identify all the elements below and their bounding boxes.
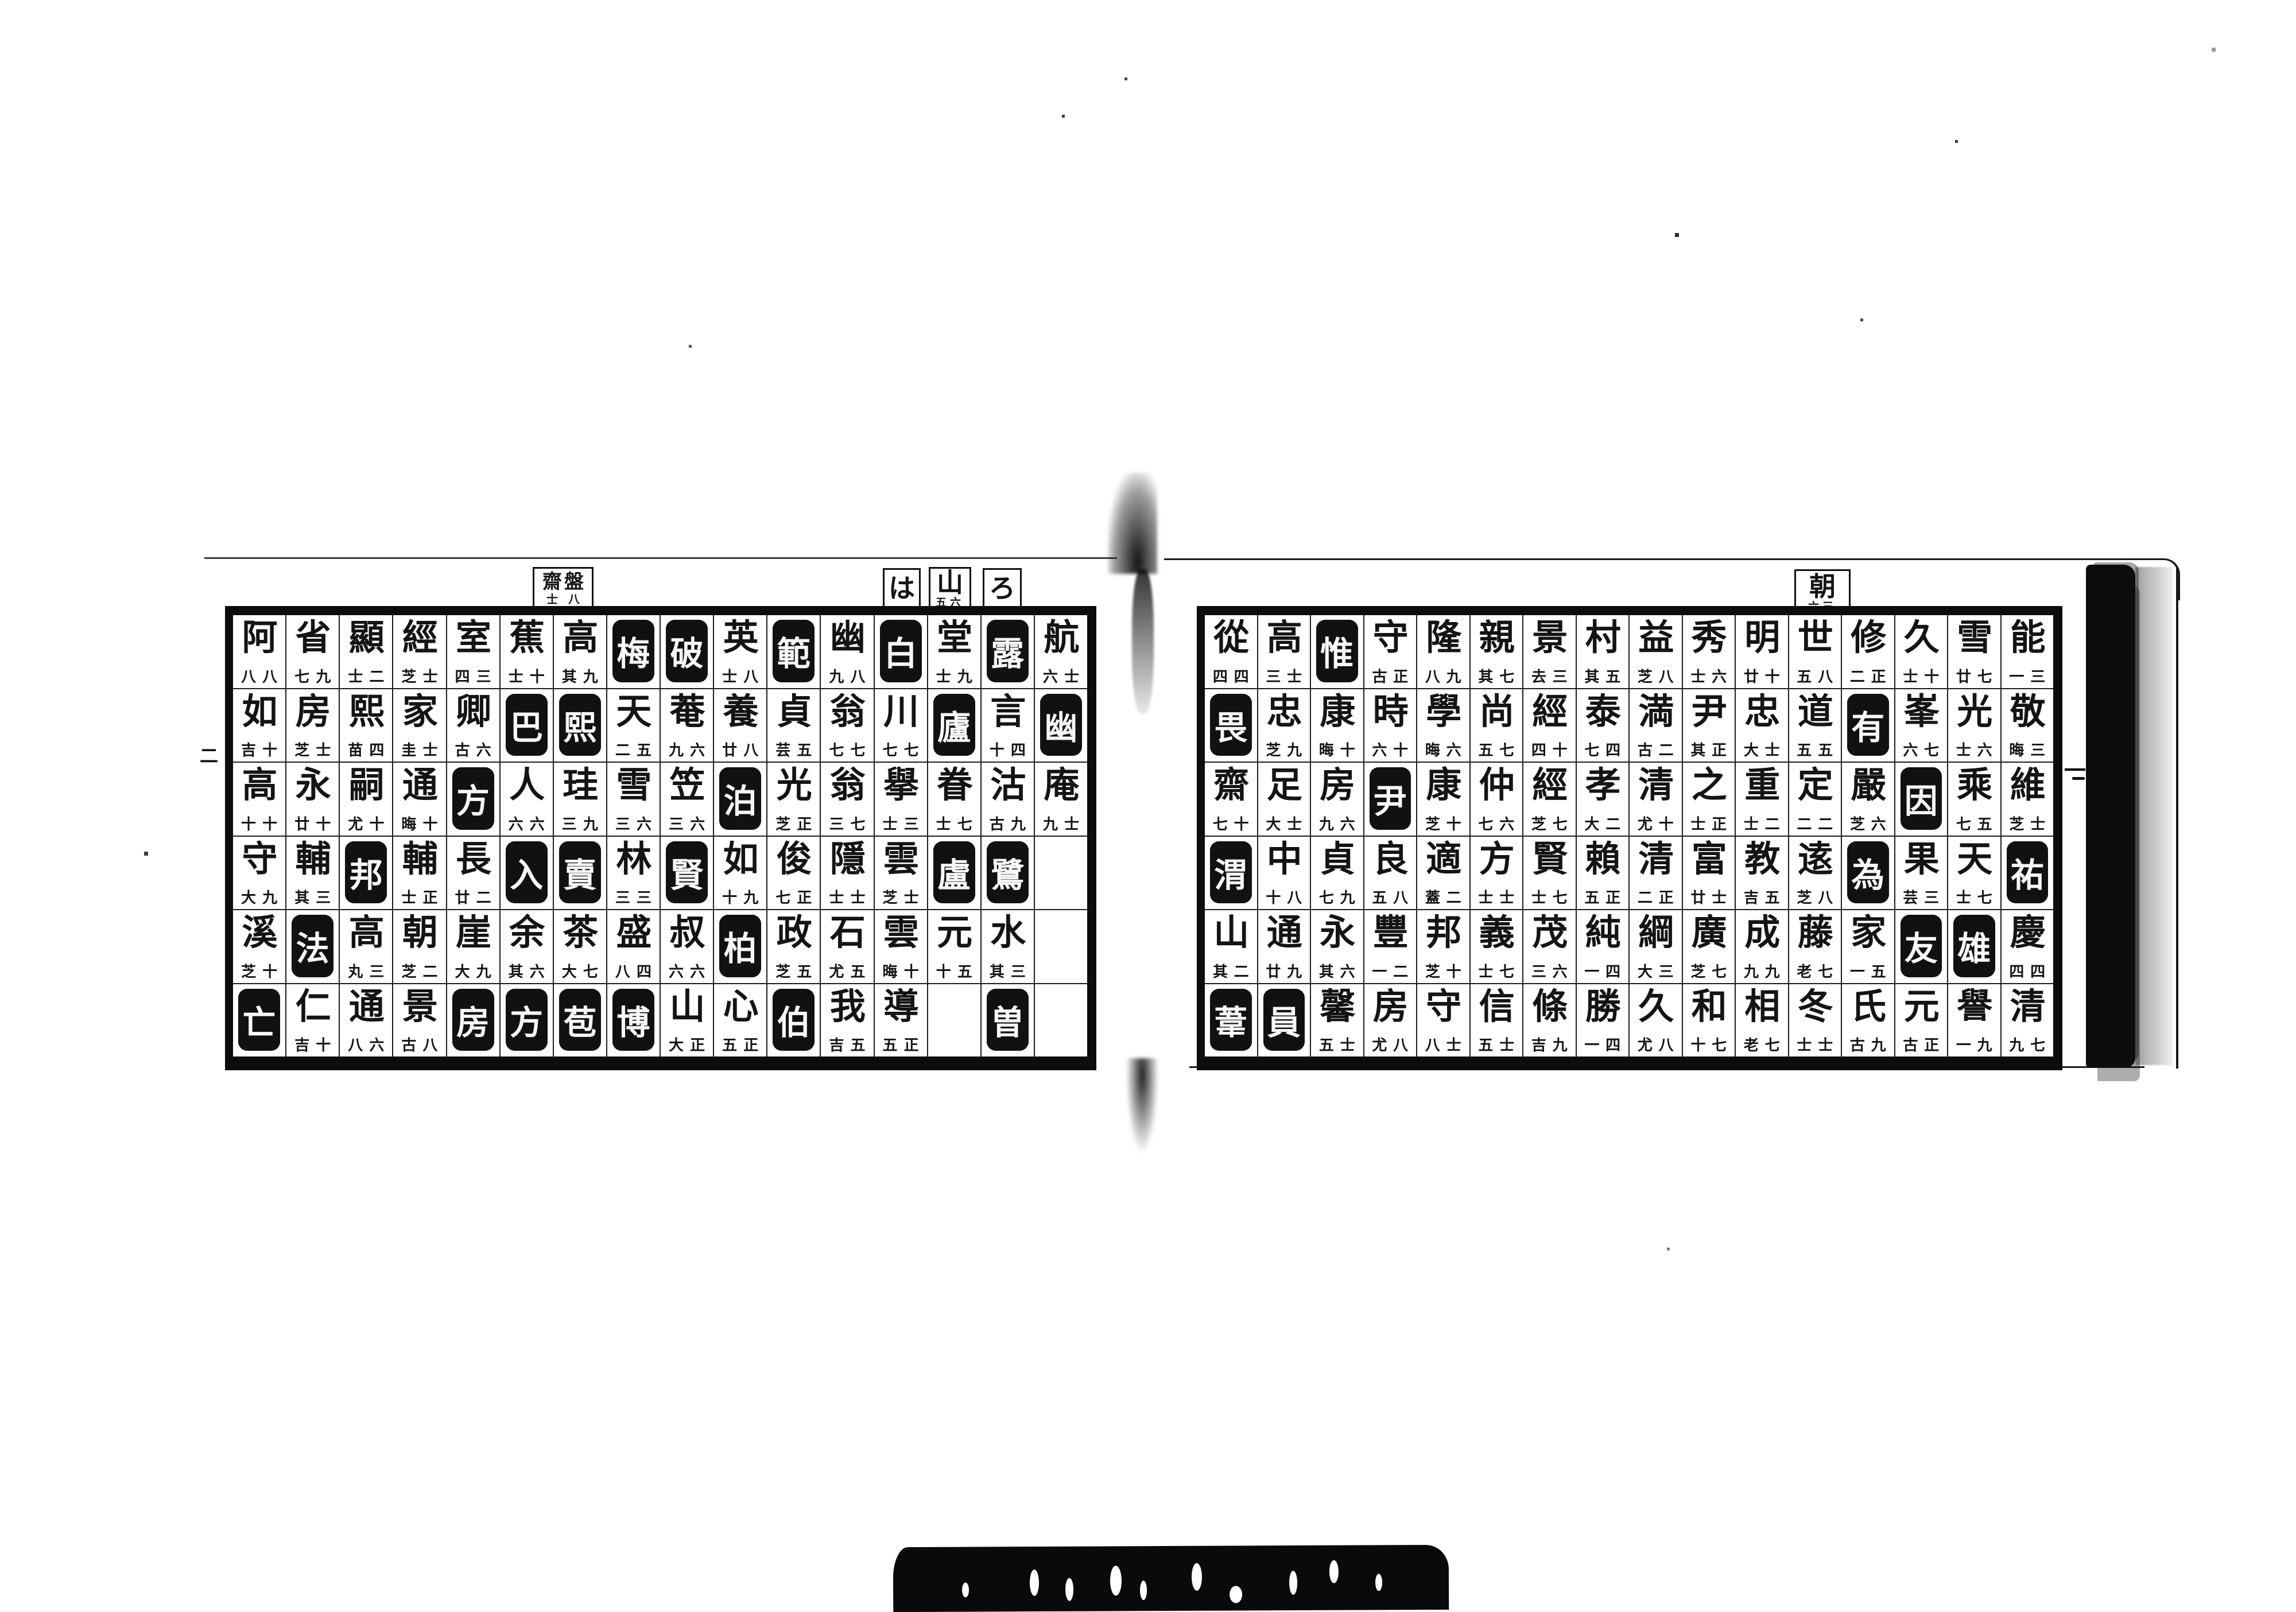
ref-numeral: 九 xyxy=(829,670,844,685)
ref-numeral: 九 xyxy=(1871,1038,1886,1053)
cell-ref-numbers: 九七 xyxy=(2003,1037,2052,1053)
inverted-cell-character: 有 xyxy=(1847,694,1889,756)
name-column: 省七九房芝士永廿十輔其三法仁吉十 xyxy=(286,615,340,1056)
grid-cell: 逺芝八 xyxy=(1789,837,1841,911)
grid-cell: 方 xyxy=(501,984,553,1057)
cell-character: 水 xyxy=(983,915,1032,952)
inverted-cell-character: 博 xyxy=(612,989,654,1051)
ref-numeral: 十 xyxy=(1234,817,1249,832)
cell-character: 成 xyxy=(1737,915,1786,952)
cell-ref-numbers: 八六 xyxy=(342,1037,390,1053)
grid-cell: 成九九 xyxy=(1736,910,1788,984)
ref-numeral: 三 xyxy=(615,891,630,906)
ref-char: 齋 xyxy=(542,573,562,592)
grid-cell: 為 xyxy=(1842,837,1894,911)
cell-ref-numbers: 四四 xyxy=(1207,669,1255,685)
inverted-cell-character: 熙 xyxy=(559,694,601,756)
name-column: 景去三經四十經芝七賢士七茂三六條吉九 xyxy=(1523,615,1577,1056)
ref-numeral: 正 xyxy=(1393,670,1408,685)
ref-numeral: 古 xyxy=(1903,1038,1918,1053)
ref-numeral: 十 xyxy=(1446,817,1461,832)
ref-numeral: 七 xyxy=(1319,891,1334,906)
cell-character: 光 xyxy=(769,767,818,805)
grid-cell: 經芝士 xyxy=(393,615,445,689)
cell-ref-numbers: 大七 xyxy=(556,964,604,980)
cell-ref-numbers: 老七 xyxy=(1791,964,1840,980)
cell-ref-numbers: 芝士 xyxy=(2003,816,2052,832)
cell-ref-numbers: 士二 xyxy=(1737,816,1786,832)
grid-cell: 光芝正 xyxy=(767,763,820,837)
ref-numeral: 二 xyxy=(1797,817,1812,832)
name-column: 範貞芸五光芝正俊七正政芝五伯 xyxy=(767,615,821,1056)
cell-ref-numbers: 芸三 xyxy=(1897,889,1946,906)
grid-cell: 賢 xyxy=(661,837,713,911)
ref-numeral: 廿 xyxy=(455,891,470,906)
grid-cell: 清二正 xyxy=(1630,837,1682,911)
cell-character: 家 xyxy=(395,694,444,731)
grid-cell: 元十五 xyxy=(928,910,980,984)
grid-cell: 通晦十 xyxy=(393,763,445,837)
ref-numeral: 三 xyxy=(1553,670,1568,685)
grid-cell: 盧 xyxy=(928,837,980,911)
cell-ref-numbers: 其六 xyxy=(502,964,551,980)
grid-cell: 天士七 xyxy=(1948,837,2000,911)
ref-numeral: 六 xyxy=(1977,743,1992,758)
grid-cell-empty xyxy=(1035,984,1087,1057)
ref-numeral: 五 xyxy=(1372,891,1387,906)
ref-numeral: 七 xyxy=(775,891,790,906)
grid-cell: 朝芝二 xyxy=(393,910,445,984)
cell-character: 雲 xyxy=(876,915,925,952)
ref-numeral: 八 xyxy=(850,670,865,685)
cell-ref-numbers: 芝士 xyxy=(288,742,337,758)
ref-numeral: 七 xyxy=(1553,817,1568,832)
cell-character: 守 xyxy=(1419,989,1468,1026)
ref-numeral: 大 xyxy=(455,965,470,980)
cell-character: 敬 xyxy=(2003,694,2052,731)
cell-character: 永 xyxy=(1313,915,1362,952)
cell-ref-numbers: 四三 xyxy=(449,669,498,685)
tab-character: は xyxy=(889,576,915,602)
cell-character: 余 xyxy=(502,915,551,952)
ref-numeral: 七 xyxy=(1924,743,1939,758)
cell-ref-numbers: 士士 xyxy=(1472,889,1521,906)
cell-character: 沽 xyxy=(983,767,1032,805)
ref-numeral: 五 xyxy=(1584,891,1599,906)
ref-numeral: 五 xyxy=(1319,1038,1334,1053)
ref-numeral: 六 xyxy=(509,817,523,832)
grid-cell: 賣 xyxy=(554,837,606,911)
ref-numeral: 七 xyxy=(904,743,919,758)
cell-ref-numbers: 吉十 xyxy=(288,1037,337,1053)
cell-character: 英 xyxy=(716,620,765,657)
ref-numeral: 吉 xyxy=(829,1038,844,1053)
grid-cell: 省七九 xyxy=(286,615,339,689)
ref-numeral: 十 xyxy=(1446,965,1461,980)
grid-cell: 水其三 xyxy=(982,910,1034,984)
grid-cell: 蕉士十 xyxy=(501,615,553,689)
ref-numeral: 士 xyxy=(1712,891,1727,906)
grid-cell: 雲芝士 xyxy=(875,837,927,911)
ref-numeral: 九 xyxy=(1553,1038,1568,1053)
grid-cell: 博 xyxy=(607,984,660,1057)
ref-numeral: 七 xyxy=(1818,965,1833,980)
grid-cell: 之士正 xyxy=(1683,763,1735,837)
cell-ref-numbers: 二正 xyxy=(1844,669,1892,685)
name-column: 益芝八満古二清尤十清二正綱大三久尤八 xyxy=(1630,615,1683,1056)
cell-ref-numbers: 其二 xyxy=(1207,964,1255,980)
cell-ref-numbers: 四十 xyxy=(1525,742,1574,758)
ref-numeral: 古 xyxy=(401,1038,416,1053)
cell-ref-numbers: 廿十 xyxy=(1737,669,1786,685)
inverted-cell-character: 破 xyxy=(666,620,708,682)
ref-numeral: 芝 xyxy=(1797,891,1812,906)
cell-character: 信 xyxy=(1472,989,1521,1026)
ref-numeral: 去 xyxy=(1531,670,1546,685)
grid-cell: 範 xyxy=(767,615,820,689)
grid-cell: 鷺 xyxy=(982,837,1034,911)
ref-numeral: 士 xyxy=(1797,1038,1812,1053)
grid-cell: 村其五 xyxy=(1577,615,1629,689)
cell-ref-numbers: 士六 xyxy=(1950,742,1999,758)
ref-numeral: 二 xyxy=(369,670,384,685)
ref-numeral: 其 xyxy=(509,965,523,980)
grid-cell: 余其六 xyxy=(501,910,553,984)
ref-numeral: 士 xyxy=(1499,891,1514,906)
cell-character: 重 xyxy=(1737,767,1786,805)
cell-character: 賴 xyxy=(1578,841,1627,879)
grid-cell: 學晦六 xyxy=(1417,689,1469,763)
cell-ref-numbers: 十九 xyxy=(716,889,765,906)
ref-numeral: 十 xyxy=(316,1038,331,1053)
cell-ref-numbers: 三七 xyxy=(823,816,871,832)
inverted-cell-character: 賣 xyxy=(559,841,601,904)
inverted-cell-character: 因 xyxy=(1901,767,1942,830)
ref-numeral: 二 xyxy=(1234,965,1249,980)
ref-numeral: 士 xyxy=(1340,1038,1355,1053)
cell-ref-numbers: 晦十 xyxy=(876,964,925,980)
ref-numeral: 大 xyxy=(1584,817,1599,832)
ref-numeral: 二 xyxy=(1818,817,1833,832)
cell-ref-numbers: 古九 xyxy=(983,816,1032,832)
cell-ref-numbers: 其六 xyxy=(1313,964,1362,980)
grid-cell: 中十八 xyxy=(1258,837,1310,911)
cell-ref-numbers: 其三 xyxy=(288,889,337,906)
ref-numeral: 正 xyxy=(422,891,437,906)
grid-cell: 時六十 xyxy=(1364,689,1417,763)
grid-cell: 山大正 xyxy=(661,984,713,1057)
name-column: 室四三卿古六方長廿二崖大九房 xyxy=(447,615,501,1056)
ref-numeral: 尤 xyxy=(829,965,844,980)
cell-character: 教 xyxy=(1737,841,1786,879)
cell-ref-numbers: 大士 xyxy=(1737,742,1786,758)
ref-numeral: 八 xyxy=(743,743,758,758)
cell-ref-numbers: 一三 xyxy=(2003,669,2052,685)
ref-numeral: 士 xyxy=(316,743,331,758)
cell-character: 久 xyxy=(1631,989,1680,1026)
ref-numeral: 二 xyxy=(615,743,630,758)
grid-cell: 乘七五 xyxy=(1948,763,2000,837)
cell-ref-numbers: 芝八 xyxy=(1791,889,1840,906)
ref-numeral: 八 xyxy=(1659,1038,1674,1053)
cell-ref-numbers: 尤八 xyxy=(1631,1037,1680,1053)
ref-numeral: 三 xyxy=(904,817,919,832)
grid-cell: 冬士士 xyxy=(1789,984,1841,1057)
cell-ref-numbers: 廿九 xyxy=(1260,964,1309,980)
ref-numeral: 芝 xyxy=(1531,817,1546,832)
cell-character: 清 xyxy=(1631,767,1680,805)
ref-numeral: 十 xyxy=(262,965,277,980)
cell-ref-numbers: 一五 xyxy=(1844,964,1892,980)
ref-numeral: 正 xyxy=(797,891,812,906)
cell-character: 貞 xyxy=(769,694,818,731)
cell-character: 齋 xyxy=(1207,767,1255,805)
grid-cell: 導五正 xyxy=(875,984,927,1057)
grid-cell: 崖大九 xyxy=(447,910,499,984)
cell-ref-numbers: 芝八 xyxy=(1631,669,1680,685)
cell-ref-numbers: 芝七 xyxy=(1525,816,1574,832)
cell-ref-numbers: 吉九 xyxy=(1525,1037,1574,1053)
cell-character: 村 xyxy=(1578,620,1627,657)
cell-ref-numbers: 三三 xyxy=(609,889,658,906)
cell-character: 高 xyxy=(235,767,284,805)
cell-ref-numbers: 十十 xyxy=(235,816,284,832)
cell-ref-numbers: 三六 xyxy=(1525,964,1574,980)
cell-character: 明 xyxy=(1737,620,1786,657)
cell-character: 崖 xyxy=(449,915,498,952)
cell-character: 能 xyxy=(2003,620,2052,657)
gutter-smudge-bottom xyxy=(1126,1058,1158,1152)
grid-cell: 康晦十 xyxy=(1311,689,1363,763)
cell-ref-numbers: 七七 xyxy=(823,742,871,758)
cell-character: 慶 xyxy=(2003,915,2052,952)
ref-numeral: 芝 xyxy=(1638,670,1653,685)
cell-ref-numbers: 五八 xyxy=(1791,669,1840,685)
grid-cell: 石尤五 xyxy=(821,910,873,984)
inverted-cell-character: 亡 xyxy=(238,989,280,1051)
grid-cell: 輔士正 xyxy=(393,837,445,911)
grid-cell: 世五八 xyxy=(1789,615,1841,689)
grid-cell: 英士八 xyxy=(714,615,766,689)
cell-character: 良 xyxy=(1366,841,1415,879)
grid-cell: 景古八 xyxy=(393,984,445,1057)
name-column: 高其九熙珪三九賣茶大七苞 xyxy=(554,615,607,1056)
grid-cell: 光士六 xyxy=(1948,689,2000,763)
grid-cell: 堂士九 xyxy=(928,615,980,689)
ref-numeral: 古 xyxy=(1638,743,1653,758)
ref-numeral: 士 xyxy=(1818,1038,1833,1053)
cell-character: 室 xyxy=(449,620,498,657)
cell-character: 天 xyxy=(1950,841,1999,879)
tab-character: ろ xyxy=(989,576,1015,602)
ref-numeral: 八 xyxy=(1425,670,1440,685)
name-column: 守古正時六十尹良五八豐一二房尤八 xyxy=(1364,615,1418,1056)
name-column: 修二正有嚴芝六為家一五氏古九 xyxy=(1842,615,1895,1056)
ref-numeral: 四 xyxy=(369,743,384,758)
ref-numeral: 七 xyxy=(1499,965,1514,980)
cell-ref-numbers: 芝士 xyxy=(876,889,925,906)
ref-numeral: 六 xyxy=(1712,670,1727,685)
cell-ref-numbers: 九六 xyxy=(662,742,711,758)
grid-cell-empty xyxy=(928,984,980,1057)
grid-cell: 通廿九 xyxy=(1258,910,1310,984)
ref-numeral: 一 xyxy=(1372,965,1387,980)
grid-cell: 修二正 xyxy=(1842,615,1894,689)
name-column: 從四四畏齋七十渭山其二葦 xyxy=(1205,615,1258,1056)
cell-ref-numbers xyxy=(930,1037,979,1053)
ref-numeral: 七 xyxy=(957,817,972,832)
cell-ref-numbers: 大九 xyxy=(449,964,498,980)
ref-numeral: 七 xyxy=(1499,670,1514,685)
ref-numeral: 老 xyxy=(1744,1038,1759,1053)
ref-numeral: 九 xyxy=(583,670,598,685)
ref-numeral: 十 xyxy=(1266,891,1281,906)
grid-cell: 苞 xyxy=(554,984,606,1057)
grid-cell: 庵九士 xyxy=(1035,763,1087,837)
ref-numeral: 士 xyxy=(1064,670,1079,685)
inverted-cell-character: 白 xyxy=(880,620,922,682)
grid-cell: 渭 xyxy=(1205,837,1257,911)
grid-cell: 隱士士 xyxy=(821,837,873,911)
grid-cell: 幽九八 xyxy=(821,615,873,689)
ref-numeral: 六 xyxy=(1372,743,1387,758)
cell-character: 雪 xyxy=(1950,620,1999,657)
grid-cell: 溪芝十 xyxy=(233,910,285,984)
cell-ref-numbers: 士七 xyxy=(1525,889,1574,906)
cell-ref-numbers: 大二 xyxy=(1578,816,1627,832)
cell-character: 通 xyxy=(342,989,390,1026)
page-edge-speckle xyxy=(2135,567,2173,1065)
cell-ref-numbers: 五七 xyxy=(1472,742,1521,758)
cell-ref-numbers: 廿七 xyxy=(1950,669,1999,685)
cell-character: 石 xyxy=(823,915,871,952)
name-column: 阿八八如吉十高十十守大九溪芝十亡 xyxy=(233,615,286,1056)
cell-ref-numbers: 士七 xyxy=(1950,889,1999,906)
cell-character: 經 xyxy=(1525,767,1574,805)
ref-numeral: 三 xyxy=(2030,743,2045,758)
cell-character: 足 xyxy=(1260,767,1309,805)
ref-numeral: 十 xyxy=(990,743,1004,758)
ref-numeral: 其 xyxy=(1690,743,1705,758)
grid-cell-empty xyxy=(1035,837,1087,911)
right-page-top-edge xyxy=(1164,558,2130,560)
cell-character: 康 xyxy=(1419,767,1468,805)
inverted-cell-character: 房 xyxy=(452,989,494,1051)
cell-character: 清 xyxy=(2003,989,2052,1026)
cell-character: 蕉 xyxy=(502,620,551,657)
ref-numeral: 二 xyxy=(1605,817,1620,832)
cell-character: 馨 xyxy=(1313,989,1362,1026)
ref-numeral: 五 xyxy=(637,743,651,758)
ref-numeral: 正 xyxy=(904,1038,919,1053)
inverted-cell-character: 苞 xyxy=(559,989,601,1051)
ref-numeral: 芝 xyxy=(2009,817,2024,832)
cell-character: 茶 xyxy=(556,915,604,952)
cell-ref-numbers: 丸三 xyxy=(342,964,390,980)
cell-character: 仲 xyxy=(1472,767,1521,805)
name-column: 世五八道五五定二二逺芝八藤老七冬士士 xyxy=(1789,615,1843,1056)
name-column: 顯士二熙苗四嗣尤十邦高丸三通八六 xyxy=(340,615,393,1056)
cell-character: 叔 xyxy=(662,915,711,952)
name-column: 高三士忠芝九足大士中十八通廿九員 xyxy=(1258,615,1312,1056)
ref-numeral: 二 xyxy=(1638,891,1653,906)
cell-ref-numbers: 士八 xyxy=(716,669,765,685)
ref-numeral: 七 xyxy=(294,670,309,685)
grid-cell: 泊 xyxy=(714,763,766,837)
grid-cell: 露 xyxy=(982,615,1034,689)
ref-numeral: 大 xyxy=(562,965,577,980)
ref-numeral: 四 xyxy=(1531,743,1546,758)
grid-cell: 雪三六 xyxy=(607,763,660,837)
ref-numeral: 六 xyxy=(637,817,651,832)
cell-ref-numbers: 九六 xyxy=(1313,816,1362,832)
ref-numeral: 八 xyxy=(1818,891,1833,906)
grid-cell: 益芝八 xyxy=(1630,615,1682,689)
ref-numeral: 吉 xyxy=(1744,891,1759,906)
ref-numeral: 八 xyxy=(1393,1038,1408,1053)
cell-character: 元 xyxy=(1897,989,1946,1026)
grid-cell: 方 xyxy=(447,763,499,837)
grid-cell: 譽一九 xyxy=(1948,984,2000,1057)
cell-character: 房 xyxy=(1313,767,1362,805)
grid-cell: 義士七 xyxy=(1471,910,1523,984)
ref-numeral: 九 xyxy=(1319,817,1334,832)
ref-numeral: 八 xyxy=(1818,670,1833,685)
cell-character: 純 xyxy=(1578,915,1627,952)
cell-character: 尚 xyxy=(1472,694,1521,731)
grid-cell: 白 xyxy=(875,615,927,689)
ref-numeral: 尤 xyxy=(1638,817,1653,832)
ref-box-left-entry: 齋 士 xyxy=(542,573,562,605)
cell-character: 茂 xyxy=(1525,915,1574,952)
cell-ref-numbers: 六六 xyxy=(662,964,711,980)
cell-ref-numbers: 七九 xyxy=(1313,889,1362,906)
cell-character: 果 xyxy=(1897,841,1946,879)
ref-numeral: 八 xyxy=(1425,1038,1440,1053)
cell-character: 道 xyxy=(1791,694,1840,731)
ref-numeral: 廿 xyxy=(1956,670,1971,685)
cell-character: 阿 xyxy=(235,620,284,657)
inverted-cell-character: 渭 xyxy=(1210,841,1252,904)
cell-ref-numbers: 三士 xyxy=(1260,669,1309,685)
ref-numeral: 五 xyxy=(1478,743,1493,758)
ref-numeral: 正 xyxy=(1712,743,1727,758)
name-column: 能一三敬晦三維芝士祐慶四四清九七 xyxy=(2002,615,2054,1056)
grid-cell: 相老七 xyxy=(1736,984,1788,1057)
grid-cell: 如吉十 xyxy=(233,689,285,763)
cell-ref-numbers: 二二 xyxy=(1791,816,1840,832)
ref-numeral: 九 xyxy=(1744,965,1759,980)
cell-character: 庵 xyxy=(1037,767,1085,805)
ref-numeral: 十 xyxy=(1690,1038,1705,1053)
cell-ref-numbers: 士六 xyxy=(1685,669,1733,685)
cell-ref-numbers: 七九 xyxy=(288,669,337,685)
grid-cell: 翁七七 xyxy=(821,689,873,763)
tab-character: 山 xyxy=(937,570,963,596)
cell-character: 航 xyxy=(1037,620,1085,657)
cell-ref-numbers: 六七 xyxy=(1897,742,1946,758)
cell-character xyxy=(1037,915,1085,951)
ref-numeral: 五 xyxy=(883,1038,898,1053)
ref-numeral: 其 xyxy=(562,670,577,685)
grid-cell: 人六六 xyxy=(501,763,553,837)
cell-character: 景 xyxy=(395,989,444,1026)
ref-numeral: 一 xyxy=(1850,965,1865,980)
inverted-cell-character: 賢 xyxy=(666,841,708,904)
ref-numeral: 三 xyxy=(476,670,491,685)
inverted-cell-character: 露 xyxy=(987,620,1029,682)
grid-cell: 仲七六 xyxy=(1471,763,1523,837)
